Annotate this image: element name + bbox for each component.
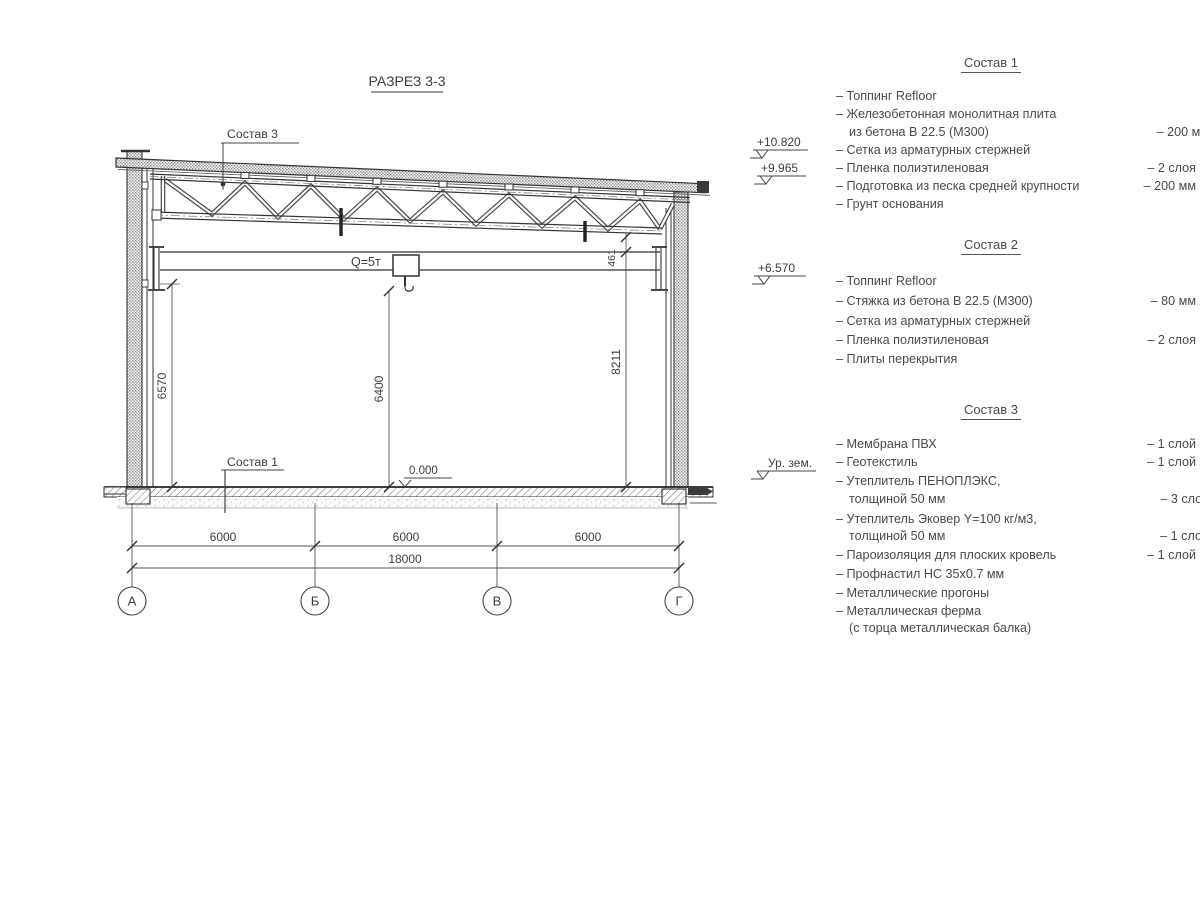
roof-ref-label: Состав 3: [227, 127, 278, 141]
right-footing: [662, 489, 686, 504]
floor-slab: [104, 487, 717, 508]
dim-right-height: 8211: [609, 349, 623, 375]
elevation-6570: +6.570: [752, 261, 806, 284]
composition-lists: Состав 1 – Топпинг Refloor – Железобетон…: [836, 0, 1196, 900]
right-corbel: [651, 247, 668, 290]
spec-row: – Пленка полиэтиленовая– 2 слоя: [836, 161, 1196, 175]
spec-row: – Железобетонная монолитная плита: [836, 107, 1196, 121]
elevation-10820: +10.820: [750, 135, 808, 158]
svg-text:+10.820: +10.820: [757, 135, 801, 149]
axis-b: Б: [311, 594, 320, 609]
axis-bubbles: А Б В Г: [118, 587, 693, 615]
drawing-title-text: РАЗРЕЗ 3-3: [369, 73, 446, 89]
bottom-dimensions: 6000 6000 6000 18000: [127, 503, 684, 587]
spec-row: – Топпинг Refloor: [836, 274, 1196, 288]
dim-bay2: 6000: [393, 530, 420, 544]
svg-text:+9.965: +9.965: [761, 161, 798, 175]
spec-row: – Геотекстиль– 1 слой: [836, 455, 1196, 469]
crane-runway: Q=5т: [148, 247, 668, 291]
drawing-title: РАЗРЕЗ 3-3: [369, 73, 446, 92]
elevation-9965: +9.965: [754, 161, 806, 184]
spec-row: – Стяжка из бетона В 22.5 (М300)– 80 мм: [836, 294, 1196, 308]
zero-level-mark: 0.000: [399, 465, 452, 487]
crane-capacity-label: Q=5т: [351, 255, 381, 269]
spec-row: – Топпинг Refloor: [836, 89, 1196, 103]
spec-header-3: Состав 3: [961, 403, 1021, 420]
left-footing: [126, 489, 150, 504]
spec-row: – Металлические прогоны: [836, 586, 1196, 600]
axis-v: В: [493, 594, 502, 609]
dim-bay3: 6000: [575, 530, 602, 544]
spec-header-2: Состав 2: [961, 238, 1021, 255]
spec-row: – Металлическая ферма: [836, 604, 1196, 618]
crane-trolley: [393, 255, 419, 291]
left-corbel: [148, 247, 165, 290]
zero-level-text: 0.000: [409, 465, 438, 477]
spec-row: (с торца металлическая балка): [836, 621, 1200, 635]
spec-header-1: Состав 1: [961, 56, 1021, 73]
crane-hook-icon: [405, 284, 413, 291]
dim-hook-height: 6400: [372, 375, 386, 402]
spec-row: – Профнастил НС 35х0.7 мм: [836, 567, 1196, 581]
axis-a: А: [128, 594, 137, 609]
elevation-marks: +10.820 +9.965 +6.570 Ур. зем.: [750, 135, 816, 479]
spec-row: – Пароизоляция для плоских кровель– 1 сл…: [836, 548, 1196, 562]
axis-g: Г: [675, 594, 682, 609]
spec-row: из бетона В 22.5 (М300)– 200 мм: [836, 125, 1200, 139]
spec-row: – Пленка полиэтиленовая– 2 слоя: [836, 333, 1196, 347]
left-wall: [121, 151, 153, 487]
spec-row: – Грунт основания: [836, 197, 1196, 211]
spec-row: – Сетка из арматурных стержней: [836, 143, 1196, 157]
spec-row: толщиной 50 мм– 1 слой: [836, 529, 1200, 543]
drawing-sheet: РАЗРЕЗ 3-3: [0, 0, 1200, 900]
spec-row: – Мембрана ПВХ– 1 слой: [836, 437, 1196, 451]
elevation-ground: Ур. зем.: [751, 456, 816, 479]
spec-row: толщиной 50 мм– 3 слоя: [836, 492, 1200, 506]
svg-text:+6.570: +6.570: [758, 261, 795, 275]
dim-truss-clearance: 461: [606, 249, 618, 267]
spec-row: – Утеплитель Эковер Y=100 кг/м3,: [836, 512, 1196, 526]
dim-total: 18000: [388, 552, 422, 566]
spec-row: – Сетка из арматурных стержней: [836, 314, 1196, 328]
spec-row: – Плиты перекрытия: [836, 352, 1196, 366]
spec-row: – Подготовка из песка средней крупности–…: [836, 179, 1196, 193]
right-wall: [666, 192, 688, 487]
dim-bay1: 6000: [210, 530, 237, 544]
svg-text:Ур. зем.: Ур. зем.: [768, 456, 812, 470]
spec-row: – Утеплитель ПЕНОПЛЭКС,: [836, 474, 1196, 488]
dim-left-height: 6570: [155, 372, 169, 399]
truss-bottom-chord: [152, 208, 662, 242]
floor-ref-label: Состав 1: [227, 455, 278, 469]
